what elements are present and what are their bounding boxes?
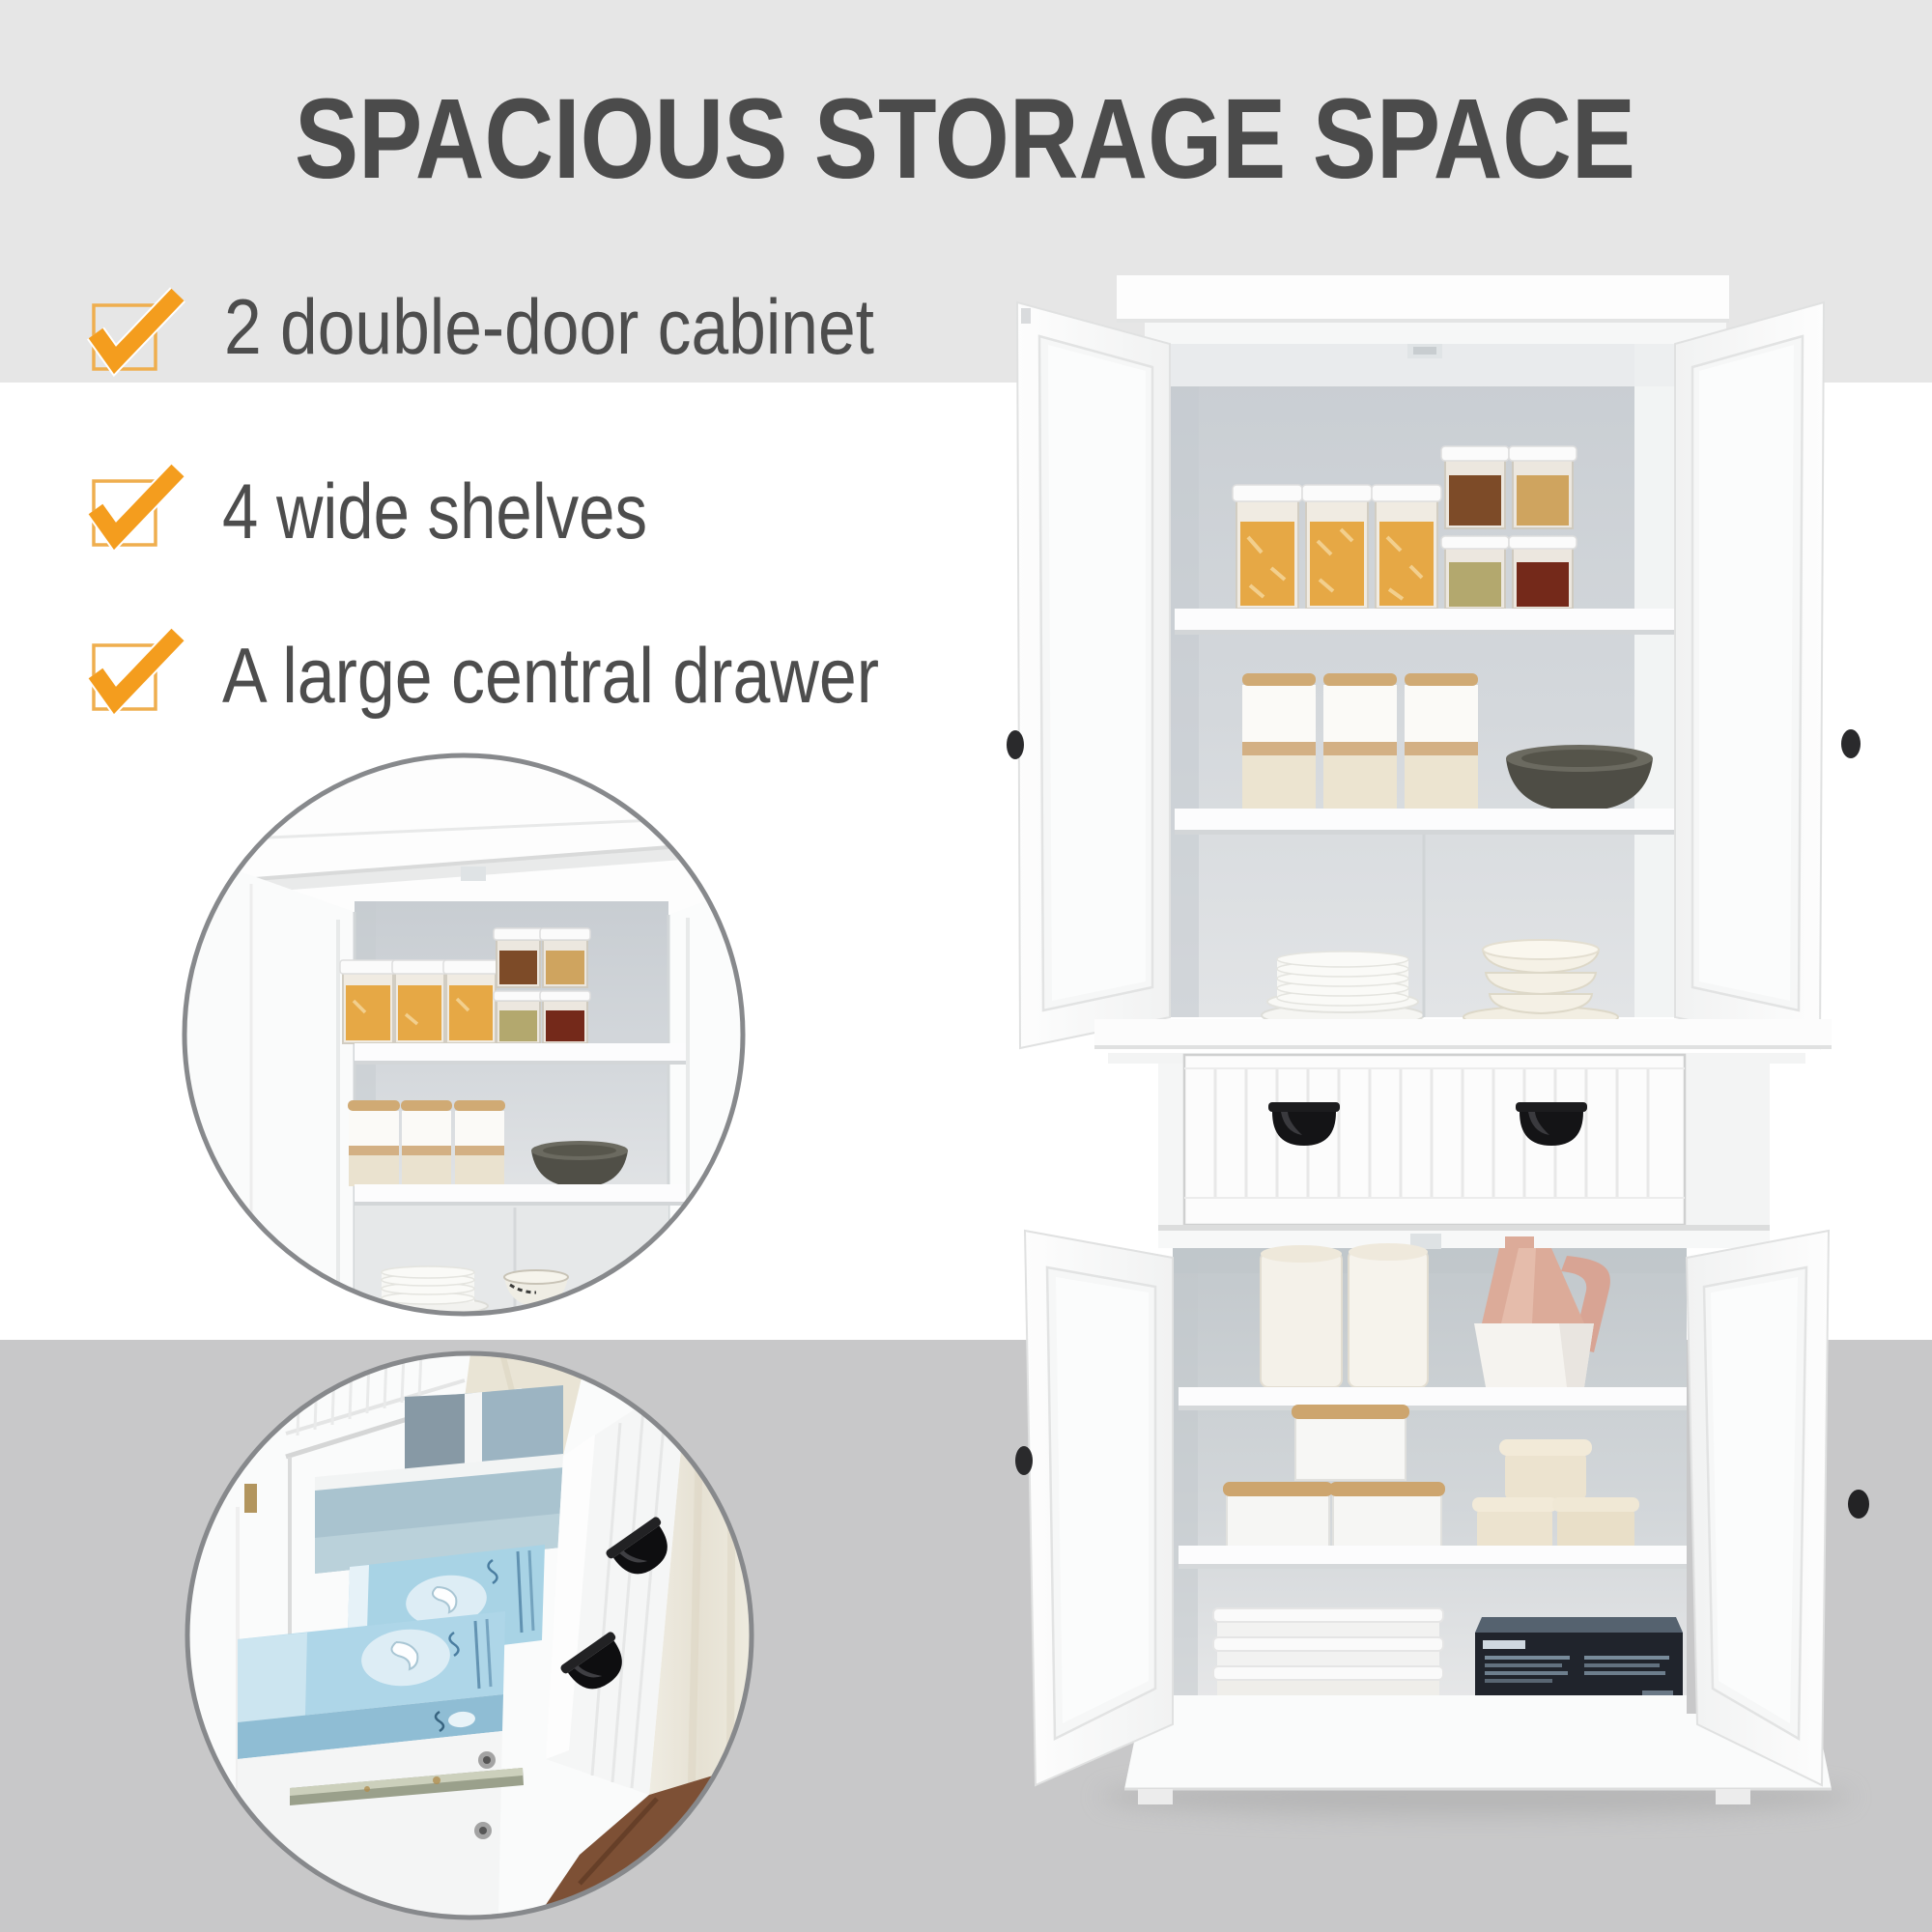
svg-text:A large central drawer: A large central drawer — [222, 633, 879, 720]
svg-text:SPACIOUS STORAGE SPACE: SPACIOUS STORAGE SPACE — [295, 75, 1635, 203]
svg-text:2 double-door cabinet: 2 double-door cabinet — [224, 284, 874, 371]
svg-text:4 wide shelves: 4 wide shelves — [222, 469, 647, 555]
